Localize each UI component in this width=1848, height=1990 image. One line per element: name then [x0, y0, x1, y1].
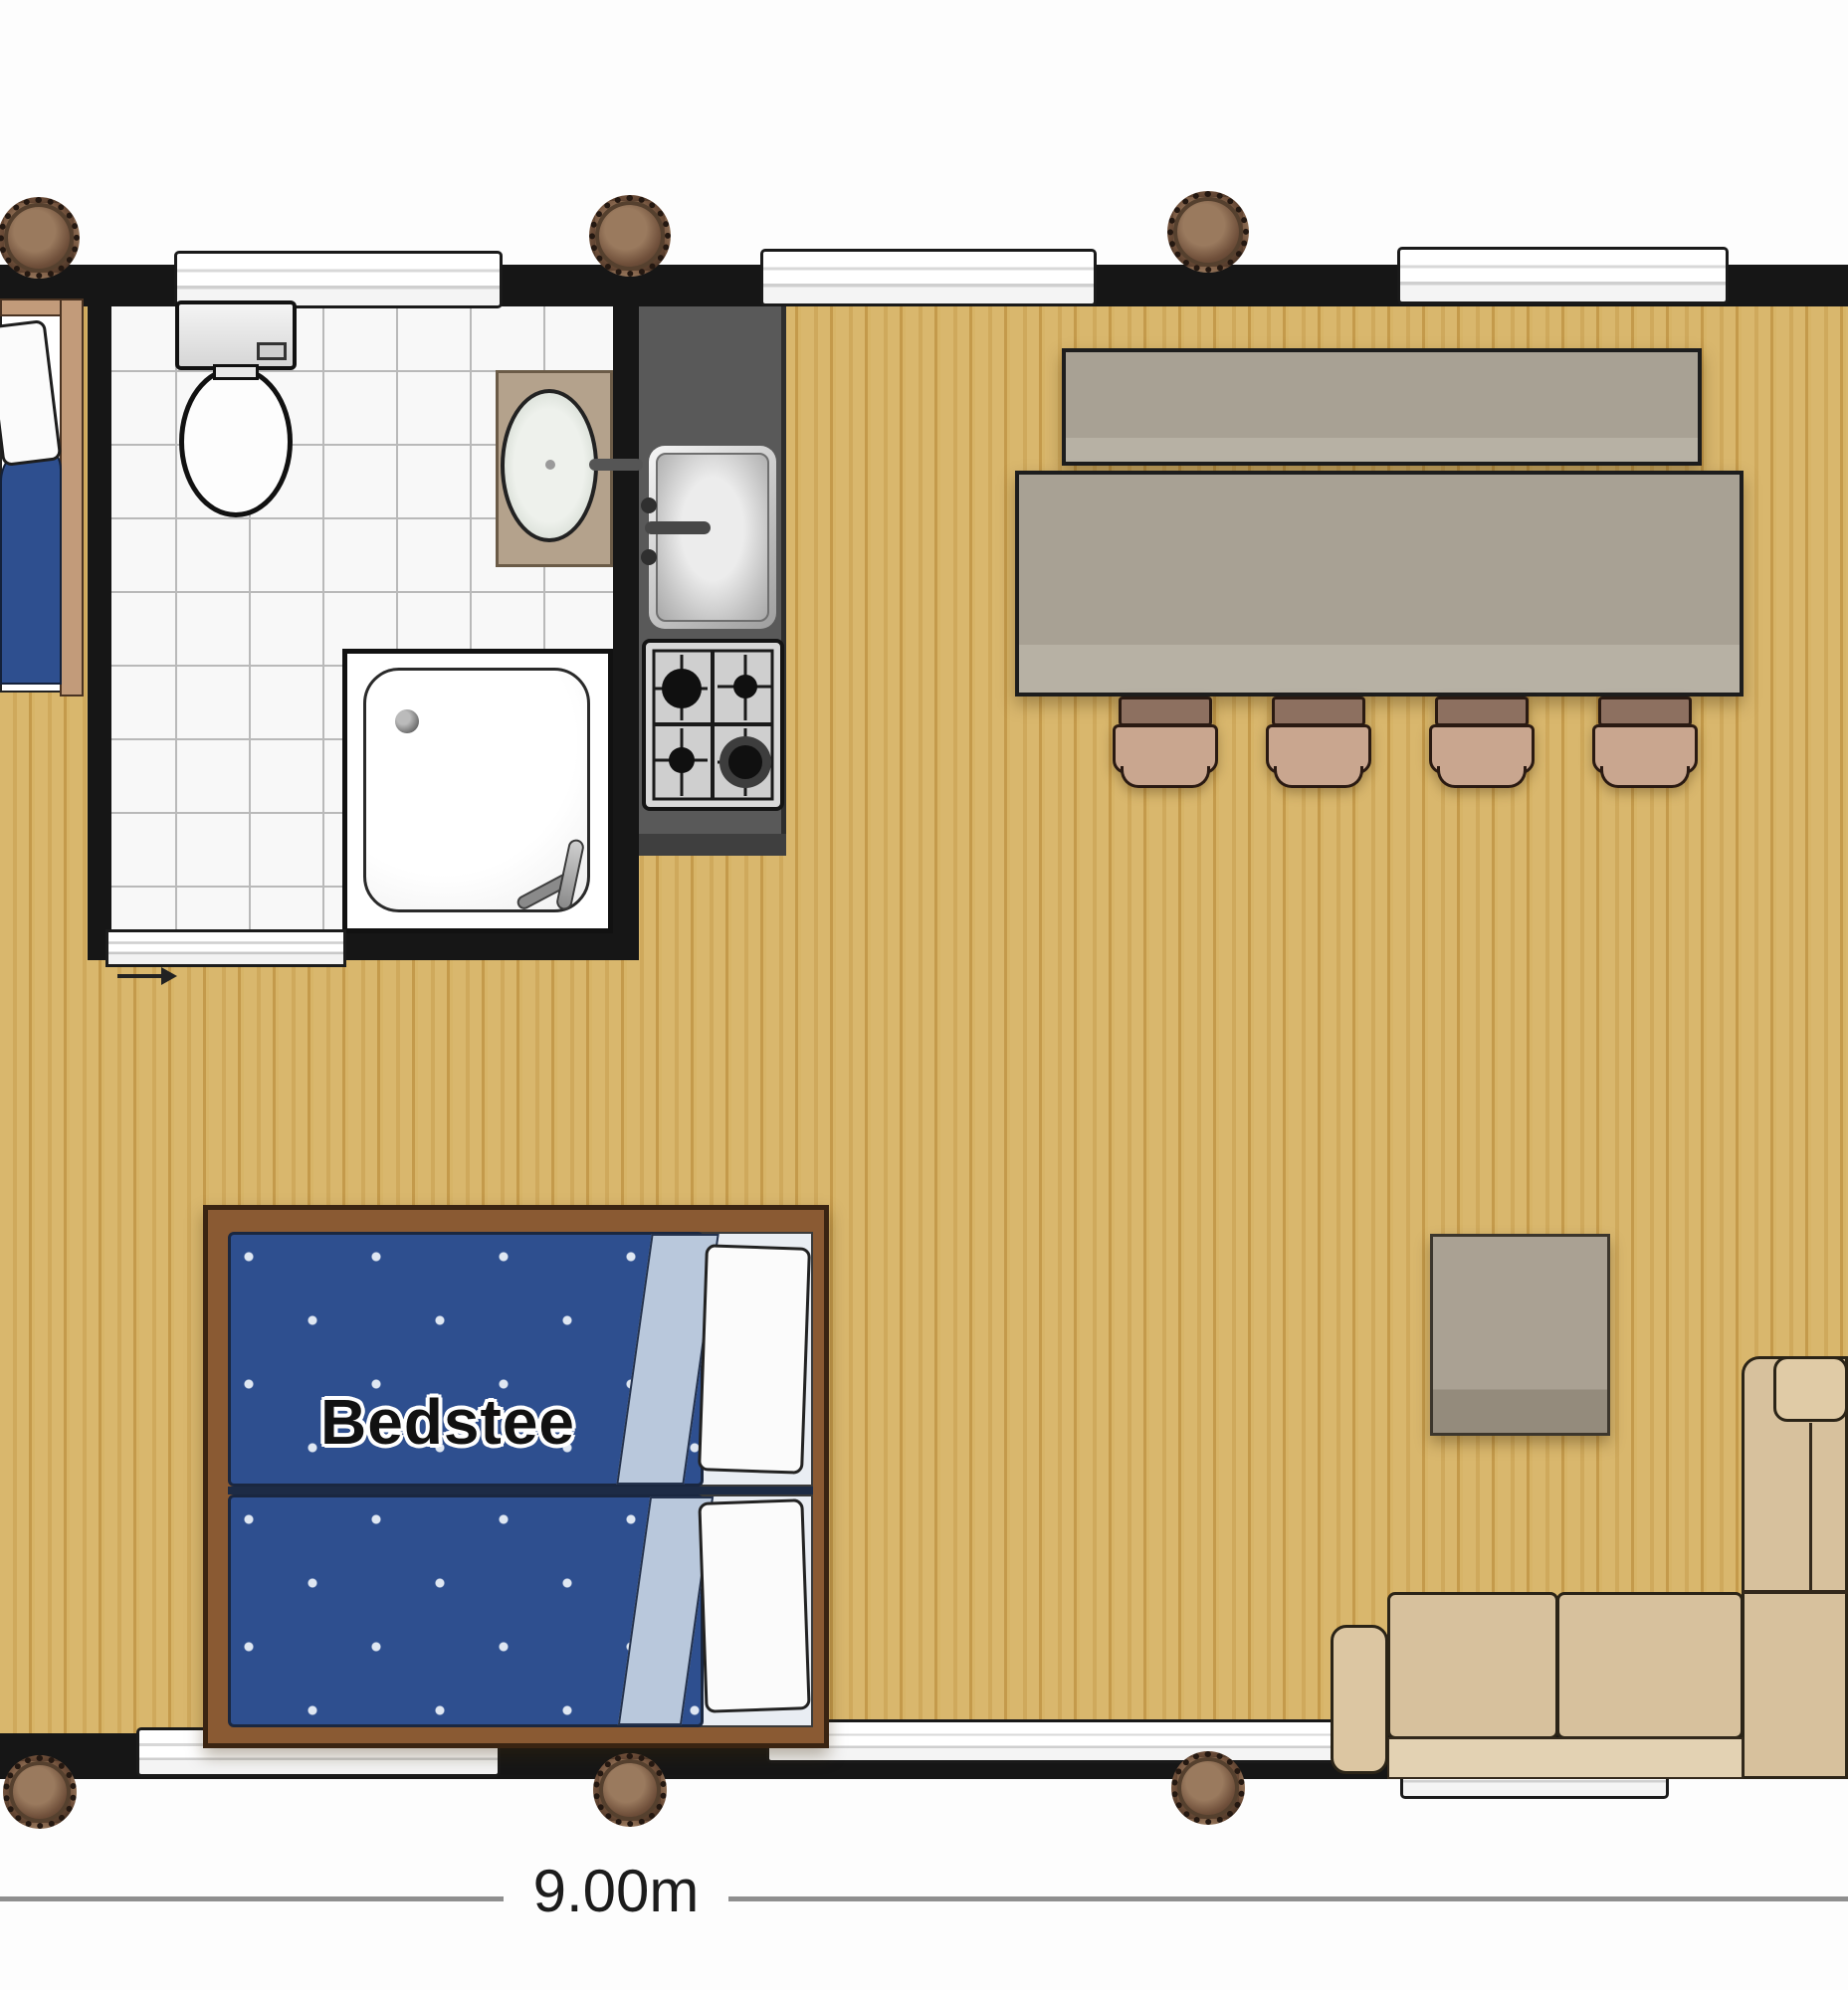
chair-legs	[1437, 766, 1527, 788]
dining-bench	[1062, 348, 1702, 466]
bathroom-wall-right	[613, 289, 639, 960]
dining-chair	[1266, 696, 1371, 788]
bed-frame	[60, 298, 84, 696]
kitchen-sink-faucet	[645, 521, 711, 534]
bathroom-wall-left	[88, 289, 111, 960]
window-top-right	[1397, 247, 1729, 304]
coffee-table	[1430, 1234, 1610, 1436]
shower-tray	[363, 668, 590, 912]
toilet-flush-button	[257, 342, 287, 360]
sofa-cushion	[1387, 1592, 1558, 1739]
dining-chair	[1429, 696, 1535, 788]
box-bed	[203, 1205, 829, 1748]
kitchen-faucet-knob	[641, 497, 657, 513]
box-bed-label: Bedstee	[229, 1385, 667, 1459]
structural-post-icon	[1167, 191, 1249, 273]
dining-chair	[1592, 696, 1698, 788]
floor-plan: Bedstee 9.00m	[0, 0, 1848, 1990]
dining-chair	[1113, 696, 1218, 788]
chair-backrest	[1119, 696, 1212, 726]
shower	[342, 649, 613, 933]
structural-post-icon	[589, 195, 671, 277]
sofa-seam	[1742, 1590, 1848, 1594]
bed-pillow	[698, 1244, 811, 1475]
shower-drain	[395, 709, 419, 733]
kitchen-counter-edge	[639, 834, 786, 856]
bathroom-sink-faucet	[589, 459, 643, 471]
door-slide-arrow-icon	[115, 963, 179, 989]
kitchen-faucet-knob	[641, 549, 657, 565]
sofa-armrest	[1331, 1625, 1388, 1774]
chair-legs	[1121, 766, 1210, 788]
bed-duvet	[0, 448, 62, 685]
kitchen-sink	[649, 446, 776, 629]
chair-backrest	[1272, 696, 1365, 726]
window-bottom-middle	[766, 1719, 1338, 1763]
bathroom-sliding-door	[105, 929, 346, 967]
toilet-seat-hinge	[213, 364, 259, 380]
chair-backrest	[1435, 696, 1529, 726]
chair-backrest	[1598, 696, 1692, 726]
sofa-armrest	[1773, 1356, 1848, 1422]
bed-pillow	[698, 1498, 810, 1713]
structural-post-icon	[0, 197, 80, 279]
structural-post-icon	[1171, 1751, 1245, 1825]
sofa-seam	[1809, 1423, 1812, 1590]
structural-post-icon	[3, 1755, 77, 1829]
dimension-line	[0, 1896, 504, 1901]
dimension-label: 9.00m	[504, 1857, 728, 1925]
bathroom-sink-drain	[545, 460, 555, 470]
sofa-cushion	[1556, 1592, 1744, 1739]
chair-legs	[1600, 766, 1690, 788]
sofa-front-edge	[1387, 1737, 1744, 1779]
bed-divider	[228, 1487, 813, 1494]
gas-stove-icon	[642, 639, 784, 811]
dimension-line	[728, 1896, 1848, 1901]
toilet-bowl	[179, 366, 293, 517]
chair-legs	[1274, 766, 1363, 788]
structural-post-icon	[593, 1753, 667, 1827]
dining-table	[1015, 471, 1744, 696]
kitchen-sink-basin	[656, 453, 769, 622]
window-top-middle	[760, 249, 1097, 306]
single-bed	[0, 298, 84, 696]
